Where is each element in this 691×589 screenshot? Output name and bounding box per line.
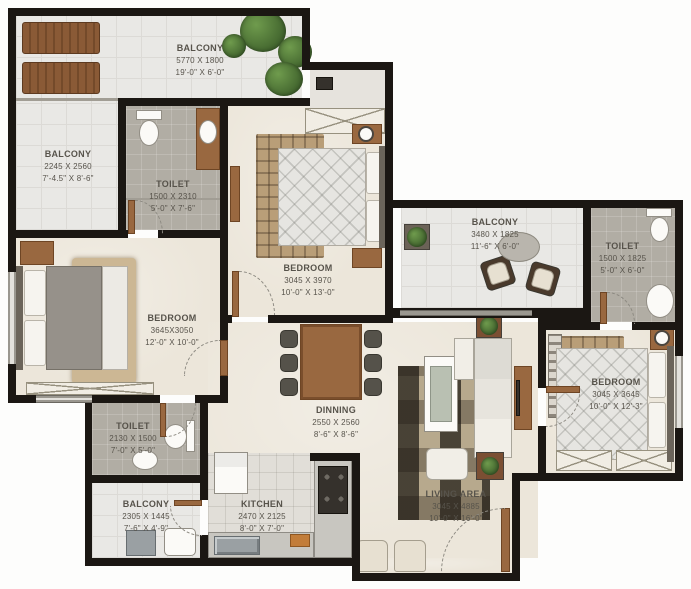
dining-chair	[364, 330, 382, 348]
room-dim-mm: 2245 X 2560	[8, 161, 128, 173]
wall	[302, 8, 310, 70]
foyer-chair	[394, 540, 426, 572]
room-dim-mm: 3480 X 1825	[435, 229, 555, 241]
room-name: BALCONY	[435, 216, 555, 229]
room-name: TOILET	[78, 420, 188, 433]
plant-icon	[480, 317, 498, 335]
window	[8, 272, 16, 364]
room-dim-ft: 10'-0" X 12'-3"	[556, 401, 676, 413]
room-dim-ft: 5'-0" X 6'-0"	[575, 265, 670, 277]
room-name: DINNING	[276, 404, 396, 417]
room-dim-ft: 7'-0" X 5'-0"	[78, 445, 188, 457]
duct-unit	[316, 77, 333, 90]
room-dim-ft: 11'-6" X 6'-0"	[435, 241, 555, 253]
wall	[352, 573, 520, 581]
tv-screen	[516, 380, 520, 416]
gas-stove-icon	[318, 466, 348, 514]
dining-table	[300, 324, 362, 400]
room-dim-ft: 10'-0" X 16'-0"	[396, 513, 516, 525]
room-dim-mm: 5770 X 1800	[140, 55, 260, 67]
room-dim-ft: 7'-4.5" X 8'-6"	[8, 173, 128, 185]
room-dim-mm: 2550 X 2560	[276, 417, 396, 429]
room-label-balcony-bottom: BALCONY 2305 X 1445 7'-6" X 4'-9"	[86, 498, 206, 534]
room-dim-ft: 10'-0" X 13'-0"	[248, 287, 368, 299]
room-dim-mm: 3645X3050	[112, 325, 232, 337]
room-label-living: LIVING AREA 3045 X 4885 10'-0" X 16'-0"	[396, 488, 516, 524]
room-label-balcony-top: BALCONY 5770 X 1800 19'-0" X 6'-0"	[140, 42, 260, 78]
nightstand	[20, 241, 54, 265]
wall	[268, 315, 393, 323]
door-leaf	[600, 292, 607, 324]
dining-chair	[364, 378, 382, 396]
room-dim-ft: 8'-6" X 8'-6"	[276, 429, 396, 441]
wall	[158, 230, 228, 238]
wall	[195, 395, 228, 403]
wall	[512, 473, 683, 481]
wall	[302, 62, 393, 70]
room-name: BALCONY	[140, 42, 260, 55]
sun-lounger	[22, 62, 100, 94]
headboard	[16, 266, 23, 370]
wardrobe-icon	[556, 450, 612, 471]
wall	[675, 200, 683, 481]
wall	[8, 8, 310, 16]
foyer-chair	[356, 540, 388, 572]
dining-chair	[280, 330, 298, 348]
room-dim-mm: 3045 X 3645	[556, 389, 676, 401]
room-dim-ft: 5'-0" X 7'-6"	[113, 203, 233, 215]
wall	[92, 475, 200, 483]
plant-icon	[407, 227, 427, 247]
room-label-kitchen: KITCHEN 2470 X 2125 8'-0" X 7'-0"	[202, 498, 322, 534]
room-dim-mm: 3045 X 3970	[248, 275, 368, 287]
wall	[8, 230, 128, 238]
room-dim-ft: 7'-6" X 4'-9"	[86, 523, 206, 535]
wall	[538, 426, 546, 480]
room-label-balcony-right: BALCONY 3480 X 1825 11'-6" X 6'-0"	[435, 216, 555, 252]
balcony-rail	[16, 98, 118, 101]
fridge	[214, 452, 248, 494]
dining-chair	[280, 354, 298, 372]
room-label-dining: DINNING 2550 X 2560 8'-6" X 8'-6"	[276, 404, 396, 440]
door-leaf	[232, 271, 239, 317]
room-name: KITCHEN	[202, 498, 322, 511]
wall	[385, 62, 393, 320]
room-label-bedroom-top: BEDROOM 3045 X 3970 10'-0" X 13'-0"	[248, 262, 368, 298]
sun-lounger	[22, 22, 100, 54]
floor-plan: BALCONY 5770 X 1800 19'-0" X 6'-0" BALCO…	[0, 0, 691, 589]
washbasin-icon	[199, 120, 217, 144]
wall	[538, 308, 546, 388]
wardrobe-icon	[616, 450, 672, 471]
dining-chair	[364, 354, 382, 372]
room-dim-mm: 3045 X 4885	[396, 501, 516, 513]
plant-icon	[481, 457, 499, 475]
room-label-toilet-top: TOILET 1500 X 2310 5'-0" X 7'-6"	[113, 178, 233, 214]
room-name: BEDROOM	[112, 312, 232, 325]
dining-chair	[280, 378, 298, 396]
room-label-balcony-left: BALCONY 2245 X 2560 7'-4.5" X 8'-6"	[8, 148, 128, 184]
wall	[118, 98, 310, 106]
room-label-toilet-bottom: TOILET 2130 X 1500 7'-0" X 5'-0"	[78, 420, 188, 456]
room-dim-mm: 2305 X 1445	[86, 511, 206, 523]
table-glass	[430, 366, 452, 422]
sliding-window	[400, 310, 532, 316]
window	[36, 395, 92, 403]
room-name: BALCONY	[86, 498, 206, 511]
room-name: TOILET	[575, 240, 670, 253]
room-name: LIVING AREA	[396, 488, 516, 501]
clock-icon	[358, 126, 374, 142]
double-bed	[278, 148, 366, 246]
room-dim-ft: 12'-0" X 10'-0"	[112, 337, 232, 349]
room-dim-mm: 1500 X 1825	[575, 253, 670, 265]
wc-tank	[646, 208, 672, 217]
room-dim-ft: 8'-0" X 7'-0"	[202, 523, 322, 535]
wc-toilet-icon	[139, 120, 159, 146]
room-dim-mm: 1500 X 2310	[113, 191, 233, 203]
wall	[393, 200, 683, 208]
room-label-bedroom-right: BEDROOM 3045 X 3645 10'-0" X 12'-3"	[556, 376, 676, 412]
clock-icon	[654, 330, 670, 346]
washbasin-icon	[646, 284, 674, 318]
room-name: BEDROOM	[248, 262, 368, 275]
room-label-toilet-right: TOILET 1500 X 1825 5'-0" X 6'-0"	[575, 240, 670, 276]
wall	[352, 558, 360, 581]
room-name: BEDROOM	[556, 376, 676, 389]
sofa	[474, 338, 512, 458]
wall	[85, 558, 360, 566]
plant-icon	[265, 62, 303, 96]
wall	[310, 453, 352, 461]
kitchen-sink-icon	[214, 536, 260, 555]
room-name: BALCONY	[8, 148, 128, 161]
pillow	[24, 270, 46, 316]
window	[675, 356, 683, 428]
wc-toilet-icon	[650, 217, 669, 242]
room-dim-mm: 2130 X 1500	[78, 433, 188, 445]
room-name: TOILET	[113, 178, 233, 191]
cutting-board	[290, 534, 310, 547]
wall	[352, 453, 360, 566]
wall	[200, 403, 208, 500]
wardrobe-icon	[26, 382, 154, 395]
room-dim-mm: 2470 X 2125	[202, 511, 322, 523]
wc-tank	[136, 110, 162, 120]
room-dim-ft: 19'-0" X 6'-0"	[140, 67, 260, 79]
armchair	[426, 448, 468, 480]
room-label-bedroom-left: BEDROOM 3645X3050 12'-0" X 10'-0"	[112, 312, 232, 348]
double-bed	[46, 266, 102, 370]
pillow	[24, 320, 46, 366]
sofa-chaise	[454, 338, 474, 380]
